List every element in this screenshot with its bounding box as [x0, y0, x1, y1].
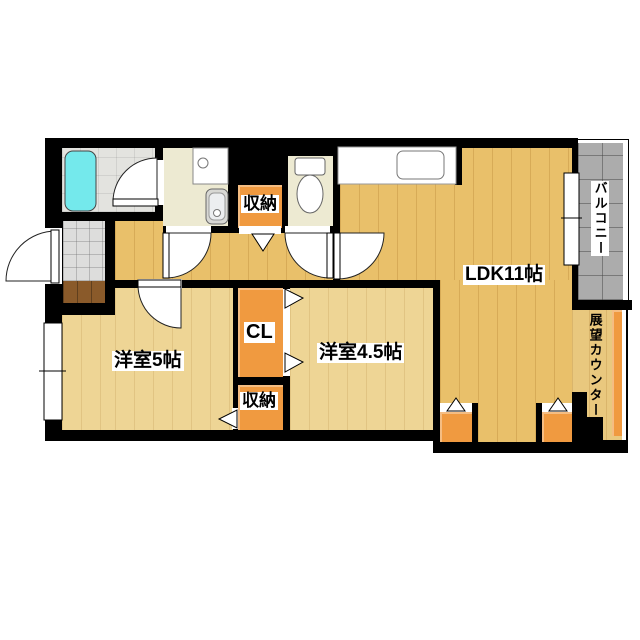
kitchen-sink-icon [397, 151, 444, 179]
ldk-door-arc [338, 233, 384, 279]
toilet-door-arc [285, 233, 330, 278]
storage-top-door-triangle [252, 234, 274, 251]
label-bedroom45: 洋室4.5帖 [317, 343, 404, 363]
balcony-window [564, 173, 579, 265]
label-bedroom5: 洋室5帖 [112, 351, 184, 371]
toilet-door-leaf [327, 233, 333, 278]
ldk-door-leaf [334, 233, 340, 279]
washroom-door-arc [166, 233, 211, 278]
washroom-doorway [166, 226, 211, 233]
storage-top-door [239, 226, 281, 234]
bedroom5-door-leaf [138, 280, 181, 287]
fixtures-overlay [0, 0, 640, 640]
toilet-doorway [285, 226, 330, 233]
floorplan-canvas: LDK11帖 洋室5帖 洋室4.5帖 CL 収納 収納 バルコニー 展望カウンタ… [0, 0, 640, 640]
toilet-tank-icon [295, 158, 325, 175]
entrance-door-arc [6, 231, 56, 281]
entrance-door-leaf [51, 230, 59, 283]
label-storage-top: 収納 [241, 195, 279, 213]
label-ldk: LDK11帖 [463, 265, 545, 285]
washroom-door-leaf [163, 233, 169, 278]
bedroom5-door-arc [138, 285, 181, 328]
bathroom-door-leaf [113, 199, 158, 206]
washbasin-drain-icon [214, 210, 221, 217]
label-balcony: バルコニー [591, 181, 609, 256]
storage-bottom-door-triangle [219, 410, 237, 428]
washing-machine-icon [193, 148, 228, 184]
bathtub-icon [65, 151, 96, 211]
bathroom-door-arc [113, 158, 157, 202]
label-view-counter: 展望カウンター [588, 313, 602, 418]
toilet-bowl-icon [297, 175, 323, 213]
label-closet-cl: CL [244, 322, 275, 343]
label-storage-bottom: 収納 [240, 392, 278, 410]
washing-machine-tap-icon [198, 158, 208, 168]
closet-cl-triangle-upper [285, 289, 303, 308]
closet-cl-triangle-lower [285, 353, 303, 372]
